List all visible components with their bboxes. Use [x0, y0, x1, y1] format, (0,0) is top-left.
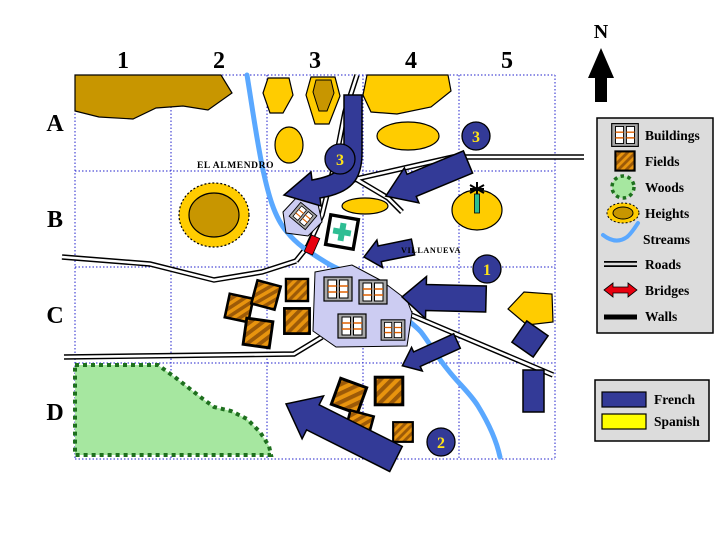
woods-area — [75, 365, 271, 455]
row-labels: A B C D — [46, 111, 64, 426]
building-icon — [381, 320, 405, 340]
marker-number: 3 — [472, 129, 480, 146]
marker-number: 1 — [483, 262, 491, 279]
spanish-swatch — [602, 414, 646, 429]
spanish-oval-west — [275, 127, 303, 163]
legend-label: Streams — [643, 232, 690, 247]
fields-icon — [615, 151, 634, 170]
marker-number: 2 — [437, 435, 445, 452]
battle-map: 3 3 1 2 EL ALMENDRO VILLANUEVA 1 2 3 4 5… — [0, 0, 720, 540]
force-label: Spanish — [654, 414, 700, 429]
forces-legend: French Spanish — [595, 380, 709, 441]
french-unit-square — [512, 321, 548, 357]
row-label: A — [46, 111, 64, 137]
force-label: French — [654, 392, 695, 407]
legend-label: Walls — [645, 309, 677, 324]
spanish-oval-center — [377, 122, 439, 150]
village-villanueva — [313, 265, 412, 347]
row-label: C — [46, 303, 63, 329]
place-label-el-almendro: EL ALMENDRO — [197, 161, 274, 171]
legend-label: Buildings — [645, 128, 700, 143]
north-label: N — [594, 21, 609, 43]
column-label: 2 — [213, 48, 225, 74]
field-icon — [393, 422, 413, 442]
legend-label: Woods — [645, 180, 684, 195]
field-icon — [251, 280, 280, 309]
building-icon — [324, 277, 352, 301]
buildings-icon — [612, 124, 639, 147]
column-label: 5 — [501, 48, 513, 74]
column-labels: 1 2 3 4 5 — [117, 48, 513, 74]
spanish-position-north — [363, 75, 451, 114]
field-icon — [284, 308, 309, 333]
row-label: D — [46, 400, 63, 426]
field-icon — [243, 318, 273, 348]
map-canvas: 3 3 1 2 EL ALMENDRO VILLANUEVA 1 2 3 4 5… — [0, 0, 720, 540]
legend-label: Fields — [645, 154, 680, 169]
woods-icon — [612, 176, 634, 198]
heights-plateau-northwest — [75, 75, 232, 119]
building-icon — [359, 280, 387, 304]
column-label: 3 — [309, 48, 321, 74]
legend-label: Heights — [645, 206, 689, 221]
field-icon — [331, 378, 366, 413]
legend-label: Roads — [645, 257, 681, 272]
spanish-unit-east — [508, 292, 553, 325]
row-label: B — [47, 207, 63, 233]
column-label: 1 — [117, 48, 129, 74]
heights-knoll-b — [306, 77, 340, 124]
heights-el-almendro — [179, 183, 249, 247]
north-arrow-icon — [588, 48, 614, 102]
field-icon — [375, 377, 403, 405]
terrain-legend: Buildings Fields Woods Heights Streams R… — [597, 118, 713, 333]
french-unit-column — [523, 370, 544, 412]
marker-number: 3 — [336, 152, 344, 169]
compass: N — [588, 21, 614, 102]
church-icon — [326, 215, 359, 249]
column-label: 4 — [405, 48, 417, 74]
field-icon — [286, 279, 308, 301]
building-icon — [338, 314, 366, 338]
legend-label: Bridges — [645, 283, 689, 298]
palm-tree-icon — [452, 182, 502, 230]
french-swatch — [602, 392, 646, 407]
place-label-villanueva: VILLANUEVA — [401, 246, 461, 255]
heights-icon — [607, 203, 639, 223]
spanish-oval-villanueva — [342, 198, 388, 214]
